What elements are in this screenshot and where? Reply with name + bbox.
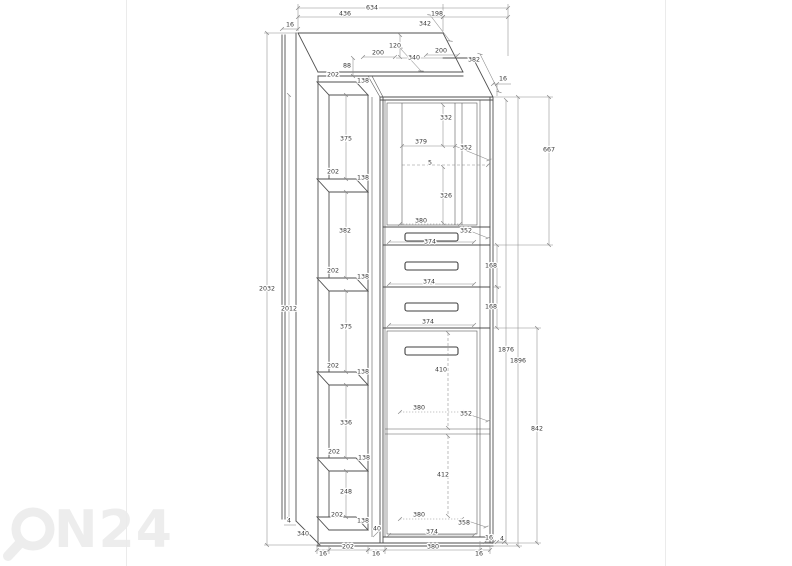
dimension-label: 332 [440, 115, 452, 122]
dimension-label: 667 [543, 147, 555, 154]
dimension-label: 5 [428, 160, 432, 167]
dimension-label: 375 [340, 136, 352, 143]
dimension-label: 248 [340, 489, 352, 496]
dimension-label: 202 [327, 169, 339, 176]
watermark: N24 [8, 500, 173, 560]
dimension-label: 16 [319, 551, 327, 558]
dimension-label: 1876 [498, 347, 514, 354]
dimension-label: 2012 [281, 306, 297, 313]
dimension-label: 202 [328, 449, 340, 456]
dimension-label: 202 [327, 363, 339, 370]
dimension-label: 138 [357, 369, 369, 376]
dimension-label: 168 [485, 304, 497, 311]
dimension-label: 374 [426, 529, 438, 536]
bottom-door [387, 331, 477, 534]
dimension-label: 375 [340, 324, 352, 331]
dimension-label: 202 [327, 72, 339, 79]
dimension-label: 138 [357, 175, 369, 182]
dimension-label: 374 [424, 239, 436, 246]
dimension-label: 202 [327, 268, 339, 275]
dimension-label: 412 [437, 472, 449, 479]
dimension-label: 4 [500, 536, 504, 543]
dimension-label: 16 [286, 22, 294, 29]
dimension-label: 374 [422, 319, 434, 326]
dimension-label: 138 [357, 518, 369, 525]
dimension-label: 436 [339, 11, 351, 18]
dimension-label: 40 [373, 526, 381, 533]
dimension-label: 326 [440, 193, 452, 200]
dimension-label: 380 [415, 218, 427, 225]
dimension-label: 200 [435, 48, 447, 55]
dimension-label: 202 [331, 512, 343, 519]
dimension-label: 16 [499, 76, 507, 83]
watermark-text: N24 [54, 500, 173, 560]
dimension-label: 380 [413, 405, 425, 412]
dimension-label: 1896 [510, 358, 526, 365]
dimension-label: 410 [435, 367, 447, 374]
dimension-label: 120 [389, 43, 401, 50]
dimension-label: 202 [342, 544, 354, 551]
dimension-label: 842 [531, 426, 543, 433]
drawer-handle-icon [405, 303, 458, 311]
dimension-label: 374 [423, 279, 435, 286]
dimension-label: 16 [475, 551, 483, 558]
dimension-label: 340 [297, 531, 309, 538]
dimension-label: 16 [372, 551, 380, 558]
dimension-label: 168 [485, 263, 497, 270]
dimension-label: 138 [358, 455, 370, 462]
dimension-label: 382 [339, 228, 351, 235]
dimension-label: 336 [340, 420, 352, 427]
dimension-label: 380 [427, 544, 439, 551]
dimension-label: 379 [415, 139, 427, 146]
dimension-label: 634 [366, 5, 378, 12]
drawer-handle-icon [405, 262, 458, 270]
cabinet-structure [282, 33, 493, 546]
dimension-label: 16 [485, 535, 493, 542]
dimension-label: 138 [357, 78, 369, 85]
dimension-label: 88 [343, 63, 351, 70]
product-image-page: N24 [0, 0, 792, 566]
dimension-label: 358 [458, 520, 470, 527]
dimension-label: 138 [357, 274, 369, 281]
furniture-dimension-drawing: N24 [0, 0, 792, 566]
dimension-label: 340 [408, 55, 420, 62]
dimension-label: 2032 [259, 286, 275, 293]
dimension-label: 380 [413, 512, 425, 519]
dimension-lines [264, 4, 553, 554]
dimension-label: 342 [419, 21, 431, 28]
dimension-label: 200 [372, 50, 384, 57]
dimension-label: 4 [287, 518, 291, 525]
page-edges [127, 0, 666, 566]
dimension-label: 352 [460, 411, 472, 418]
left-shelf-column [282, 33, 372, 545]
dimension-label: 352 [460, 145, 472, 152]
dimension-label: 382 [468, 57, 480, 64]
dimension-labels: 6344361983421612020034020038288162021383… [259, 5, 555, 558]
dimension-label: 352 [460, 228, 472, 235]
door-handle-icon [405, 347, 458, 355]
dimension-label: 198 [431, 11, 443, 18]
magnifier-handle [8, 542, 21, 556]
